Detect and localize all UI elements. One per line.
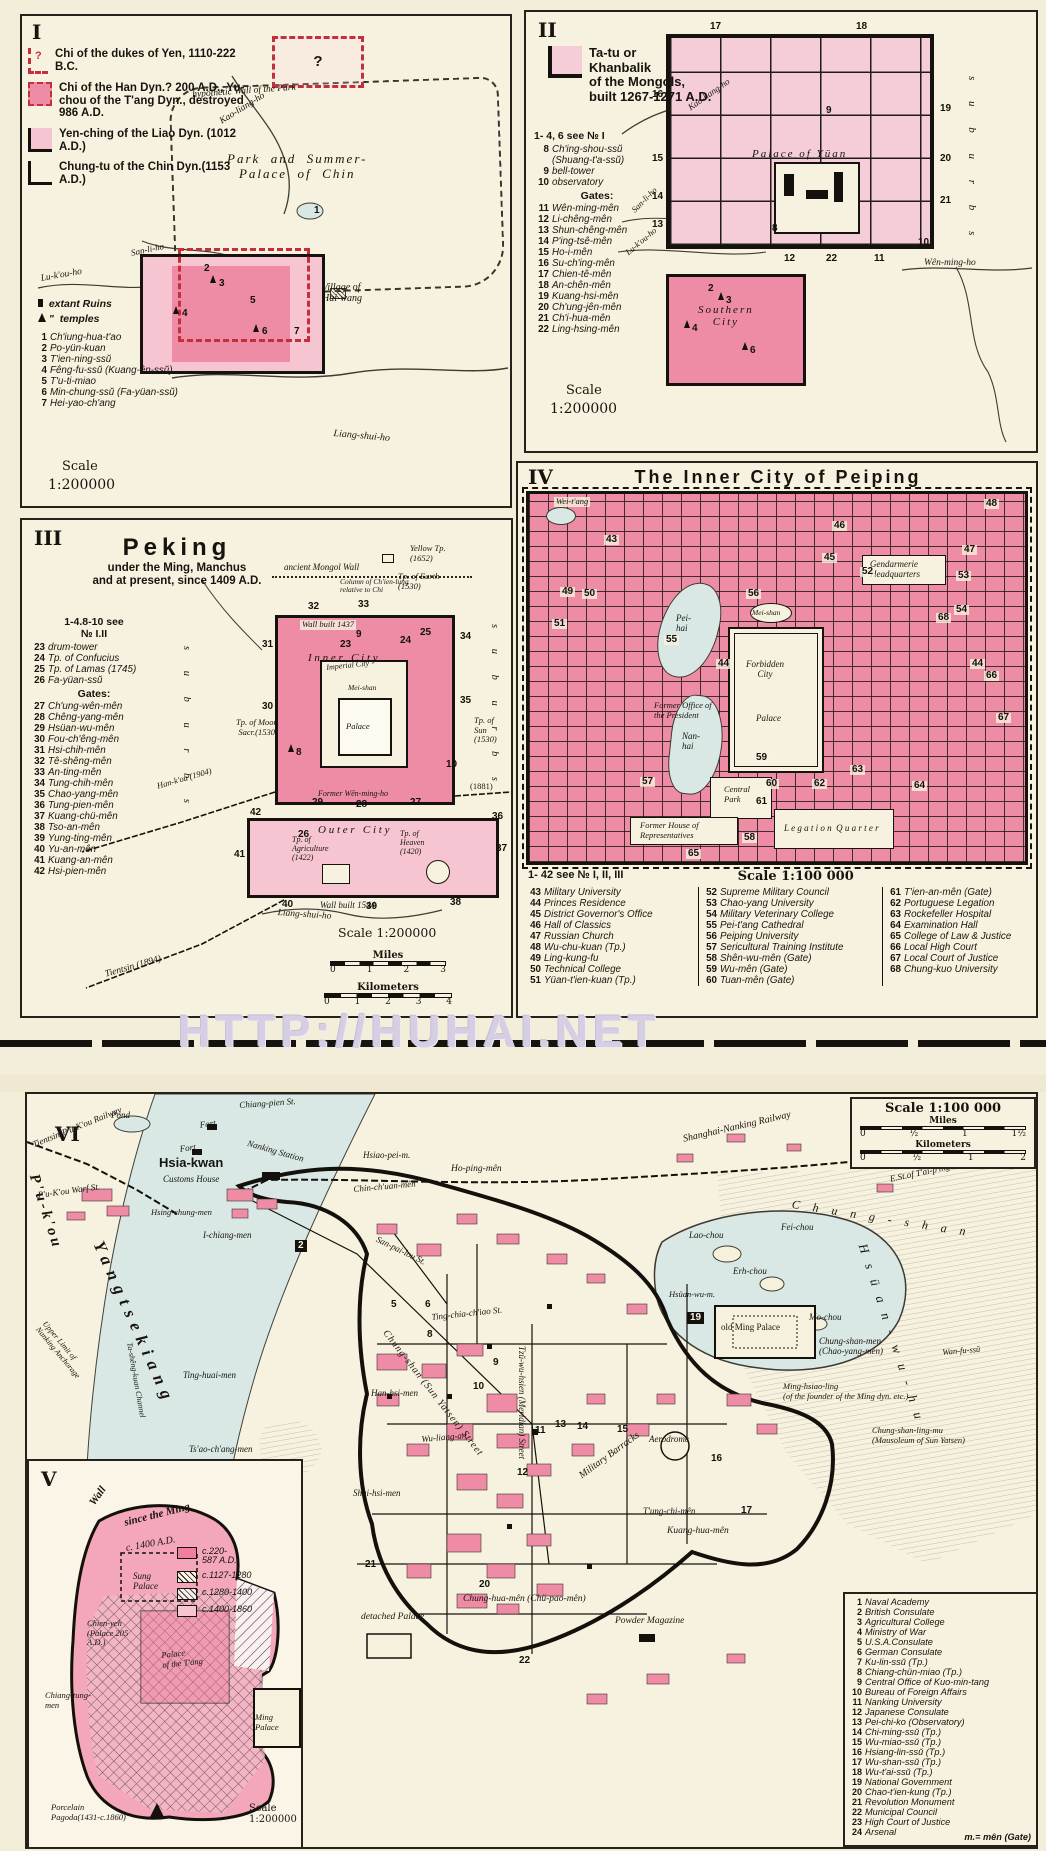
list-item: 60Tuan-mên (Gate) [702, 975, 878, 986]
han-chi-shape [178, 248, 310, 342]
map-marker: 2 [204, 264, 210, 274]
gates-heading: Gates: [534, 190, 660, 202]
map-marker: 30 [262, 702, 273, 712]
map-marker: 10 [473, 1382, 484, 1392]
map-marker: 35 [460, 696, 471, 706]
label-outer-city: O u t e r C i t y [318, 824, 390, 836]
label-temple-moon: Tp. of Moon Sacr.(1530) [236, 718, 278, 737]
map-marker: 23 [340, 640, 351, 650]
panel-2-title: Ta-tu orKhanbalikof the Mongols,built 12… [589, 46, 711, 104]
watermark-text: HTTP://HUHAI.NET [178, 1006, 660, 1058]
label-mongol-wall: ancient Mongol Wall [284, 562, 359, 572]
panel-1: I ?Chi of the dukes of Yen, 1110-222 B.C… [20, 14, 512, 508]
list-item: 13Shun-chêng-mên [534, 225, 660, 236]
label-ming-palace: Ming Palace [255, 1713, 279, 1732]
era-220-swatch-icon [177, 1547, 197, 1559]
miles-scalebar: Miles 0½11½ [860, 1116, 1026, 1140]
map-marker: 13 [555, 1420, 566, 1430]
label-meishan: Mei-shan [752, 609, 780, 617]
map-marker: 61 [754, 797, 769, 807]
map-marker: 67 [996, 713, 1011, 723]
list-item: 23drum-tower [30, 642, 158, 653]
map-marker: 4 [182, 309, 188, 319]
label-mei-shan: Mei-shan [348, 684, 376, 692]
era-1400-swatch-icon [177, 1605, 197, 1617]
map-marker: 63 [850, 765, 865, 775]
map-marker: 52 [860, 567, 875, 577]
list-item: 57Sericultural Training Institute [702, 942, 878, 953]
map-marker: 7 [294, 327, 300, 337]
label-fei-chou: Fei-chou [781, 1222, 813, 1232]
map-marker: 5 [250, 296, 256, 306]
panel-3-title: Peking [62, 534, 292, 562]
label-gendarmerie: Gendarmerie Headquarters [870, 559, 920, 579]
list-item: 58Shên-wu-mên (Gate) [702, 953, 878, 964]
map-marker: 40 [282, 900, 293, 910]
label-chung-shan-men: Chung-shan-men (Chao-yang-men) [819, 1336, 883, 1356]
list-item: 14P'ing-tsê-mên [534, 236, 660, 247]
map-marker: 21 [940, 196, 951, 206]
map-marker: 11 [874, 254, 885, 264]
list-item: 23High Court of Justice [849, 1817, 1032, 1827]
map-marker: 62 [812, 779, 827, 789]
map-marker: 66 [984, 671, 999, 681]
temple-icon [742, 342, 748, 350]
map-marker: 32 [308, 602, 319, 612]
legend-row-yen: ?Chi of the dukes of Yen, 1110-222 B.C. [28, 48, 248, 74]
bottom-sheet: VI Scale 1:100 000 Miles 0½11½ Kilometer… [0, 1092, 1046, 1851]
panel-3: III Peking under the Ming, Manchusand at… [20, 518, 513, 1018]
map-marker: 44 [970, 659, 985, 669]
legend-col-1: 43Military University44Princes Residence… [526, 887, 694, 986]
label-chien-yeh: Chien-yeh (Palace 205 A.D.) [87, 1619, 128, 1648]
list-item: 6Min-chung-ssŭ (Fa-yüan-ssŭ) [32, 387, 200, 398]
list-item: 19National Government [849, 1777, 1032, 1787]
km-ticks: 0½12 [860, 1154, 1026, 1164]
map-marker: 21 [365, 1560, 376, 1570]
label-sung-palace: Sung Palace [133, 1571, 158, 1591]
label-tung-chi-men: T'ung-chi-mên [643, 1506, 695, 1516]
map-marker: 4 [692, 324, 698, 334]
list-item: 45District Governor's Office [526, 909, 694, 920]
map-marker: 17 [741, 1506, 752, 1516]
list-item: 59Wu-mên (Gate) [702, 964, 878, 975]
chin-swatch-icon [28, 161, 52, 185]
map-marker: 50 [582, 589, 597, 599]
legend-row-chin: Chung-tu of the Chin Dyn.(1153 A.D.) [28, 161, 248, 186]
map-marker: 14 [577, 1422, 588, 1432]
list-item: 64Examination Hall [886, 920, 1032, 931]
legend-row-liao: Yen-ching of the Liao Dyn. (1012 A.D.) [28, 128, 248, 153]
map-marker: 6 [262, 327, 268, 337]
km-caption: Kilometers [324, 982, 452, 993]
map-marker: 6 [750, 346, 756, 356]
list-item: 44Princes Residence [526, 898, 694, 909]
label-wall-1437: Wall built 1437 [300, 620, 356, 630]
tick-label: 2 [1020, 1154, 1026, 1164]
label-chiang-tung-men: Chiang-tung- men [45, 1691, 91, 1710]
list-item: 20Chao-t'ien-kung (Tp.) [849, 1787, 1032, 1797]
ruins-label: extant Ruins [49, 298, 112, 310]
list-item: 51Yüan-t'ien-kuan (Tp.) [526, 975, 694, 986]
southern-city-shape [666, 274, 806, 386]
label-porcelain-pagoda: Porcelain Pagoda(1431-c.1860) [51, 1803, 126, 1822]
panel-1-legend: ?Chi of the dukes of Yen, 1110-222 B.C. … [28, 48, 248, 194]
ruins-key: extant Ruins [38, 298, 112, 310]
list-item: 8Chiang-chün-miao (Tp.) [849, 1667, 1032, 1677]
list-item: 1Ch'iung-hua-t'ao [32, 332, 200, 343]
list-item: 67Local Court of Justice [886, 953, 1032, 964]
map-marker: 6 [425, 1300, 431, 1310]
list-item: 14Chi-ming-ssŭ (Tp.) [849, 1727, 1032, 1737]
list-item: 36Tung-pien-mên [30, 800, 158, 811]
list-item: 11Nanking University [849, 1697, 1032, 1707]
map-marker: 44 [716, 659, 731, 669]
panel-1-roman: I [32, 20, 41, 44]
label-mo-chou: Mo-chou [809, 1312, 842, 1322]
list-item: 53Chao-yang University [702, 898, 878, 909]
panel-2-legend: Ta-tu orKhanbalikof the Mongols,built 12… [548, 46, 711, 104]
panel-2-key-list: 1- 4, 6 see № I 8Ch'ing-shou-ssŭ (Shuang… [534, 130, 660, 335]
legend-label: c.1280-1400 [202, 1588, 252, 1597]
temple-icon [253, 324, 259, 332]
list-item: 13Pei-chi-ko (Observatory) [849, 1717, 1032, 1727]
scale-title: Scale 1:100 000 [860, 1101, 1026, 1116]
list-item: 17Wu-shan-ssŭ (Tp.) [849, 1757, 1032, 1767]
hypothetic-chi-square: ? [272, 36, 364, 88]
scale-value: 1:200000 [550, 402, 617, 418]
panel-6-roman: VI [55, 1122, 80, 1146]
map-marker: 53 [956, 571, 971, 581]
label-tsao-chang-men: Ts'ao-ch'ang-men [189, 1444, 253, 1454]
panel-2-items: 8Ch'ing-shou-ssŭ (Shuang-t'a-ssŭ)9bell-t… [534, 144, 660, 188]
forbidden-city-shape [728, 627, 824, 773]
temple-icon [718, 292, 724, 300]
map-marker: 8 [772, 224, 778, 234]
label-president-office: Former Office of the President [654, 701, 712, 720]
list-item: 16Hsiang-lin-ssŭ (Tp.) [849, 1747, 1032, 1757]
list-item: 5U.S.A.Consulate [849, 1637, 1032, 1647]
legend-col-3: 61T'ien-an-mên (Gate)62Portuguese Legati… [882, 887, 1032, 986]
list-item: 7Hei-yao-ch'ang [32, 398, 200, 409]
list-item: 40Yu-an-mên [30, 844, 158, 855]
panel-5: V Wall since the Ming c. 1400 A.D. c.220… [27, 1459, 303, 1849]
tick-label: 2 [404, 966, 410, 976]
weitang-pond-shape [546, 507, 576, 525]
tick-label: ½ [910, 1130, 919, 1140]
see-note: 1-4.8-10 see № I.II [30, 616, 158, 640]
panel-5-roman: V [41, 1467, 57, 1491]
map-marker: 12 [517, 1468, 528, 1478]
legend-label: c.1400-1860 [202, 1605, 252, 1614]
label-kuang-hua-men: Kuang-hua-mên [667, 1526, 729, 1537]
list-item: 26Fa-yüan-ssŭ [30, 675, 158, 686]
top-sheet: I ?Chi of the dukes of Yen, 1110-222 B.C… [0, 0, 1046, 1075]
temple-icon [173, 306, 179, 314]
map-marker: 34 [460, 632, 471, 642]
label-suburbs-east: s u b u r b s [488, 624, 500, 790]
era-1280-swatch-icon [177, 1588, 197, 1600]
list-item: 55Pei-t'ang Cathedral [702, 920, 878, 931]
label-palace: Palace [346, 722, 370, 732]
label-han-hsi-men: Han-hsi-men [371, 1388, 418, 1398]
list-item: 68Chung-kuo University [886, 964, 1032, 975]
label-ting-huai-men: Ting-huai-men [183, 1370, 236, 1380]
label-hsing-chung-men: Hsing-chung-men [151, 1208, 212, 1218]
label-park: Park and Summer- Palace of Chin [227, 152, 367, 181]
list-item: 54Military Veterinary College [702, 909, 878, 920]
map-marker: 36 [492, 812, 503, 822]
map-marker: 10 [918, 238, 929, 248]
scale-title: Scale [62, 460, 98, 475]
list-item: 50Technical College [526, 964, 694, 975]
map-marker: 47 [962, 545, 977, 555]
label-southern-city: Southern City [698, 304, 754, 329]
map-marker: 68 [936, 613, 951, 623]
panel-3-gates: 27Ch'ung-wên-mên28Chêng-yang-mên29Hsüan-… [30, 701, 158, 877]
map-marker: 24 [400, 636, 411, 646]
temple-agriculture-shape [322, 864, 350, 884]
list-item: 24Tp. of Confucius [30, 653, 158, 664]
list-item: 15Wu-miao-ssŭ (Tp.) [849, 1737, 1032, 1747]
map-marker: 27 [410, 798, 421, 808]
scale-title: Scale 1:200000 [338, 926, 436, 940]
map-marker: 19 [940, 104, 951, 114]
list-item: 35Chao-yang-mên [30, 789, 158, 800]
map-marker: 51 [552, 619, 567, 629]
map-marker: 11 [535, 1426, 546, 1436]
list-item: 4Ministry of War [849, 1627, 1032, 1637]
map-marker: 8 [296, 748, 302, 758]
list-item: 49Ling-kung-fu [526, 953, 694, 964]
list-item: 28Chêng-yang-mên [30, 712, 158, 723]
label-ming-hsiao-ling: Ming-hsiao-ling (of the founder of the M… [783, 1382, 908, 1401]
map-marker: 56 [746, 589, 761, 599]
label-yellow-temple: Yellow Tp. (1652) [410, 544, 446, 563]
list-item: 9Central Office of Kuo-min-tang [849, 1677, 1032, 1687]
map-marker: 2 [295, 1240, 307, 1252]
map-marker: 37 [496, 844, 507, 854]
scale-title: Scale 1:200000 [249, 1803, 297, 1825]
map-marker: 25 [420, 628, 431, 638]
panel-4-title: The Inner City of Peiping [578, 467, 978, 488]
list-item: 62Portuguese Legation [886, 898, 1032, 909]
yen-swatch-icon: ? [28, 48, 48, 74]
list-footnote: m.= mên (Gate) [964, 1832, 1031, 1842]
map-marker: 58 [742, 833, 757, 843]
list-item: 37Kuang-chü-mên [30, 811, 158, 822]
map-marker: 54 [954, 605, 969, 615]
legend-label: Yen-ching of the Liao Dyn. (1012 A.D.) [59, 128, 248, 153]
panel-2-gates: 11Wên-ming-mên12Li-chêng-mên13Shun-chêng… [534, 203, 660, 335]
label-forbidden-palace: Palace [756, 713, 781, 723]
question-marker: ? [313, 53, 322, 70]
list-item: 61T'ien-an-mên (Gate) [886, 887, 1032, 898]
question-mark: ? [35, 50, 42, 62]
legend-label: c.1127-1280 [202, 1571, 251, 1580]
panel-4-legend-columns: 43Military University44Princes Residence… [526, 887, 1032, 986]
label-old-ming-palace: old Ming Palace [721, 1322, 780, 1332]
temples-key: " temples [38, 313, 112, 325]
map-marker: 9 [356, 630, 362, 640]
list-item: 15Ho-i-mên [534, 247, 660, 258]
list-item: 12Japanese Consulate [849, 1707, 1032, 1717]
label-former-wenming: Former Wên-ming-ho [318, 790, 388, 799]
list-item: 42Hsi-pien-mên [30, 866, 158, 877]
label-peihai: Pei- hai [676, 613, 691, 633]
label-suburbs-west: s u b u r b s [180, 646, 192, 812]
map-marker: 31 [262, 640, 273, 650]
miles-caption: Miles [860, 1116, 1026, 1126]
map-marker: 22 [826, 254, 837, 264]
list-item: 56Peiping University [702, 931, 878, 942]
panel-3-key-list: 1-4.8-10 see № I.II 23drum-tower24Tp. of… [30, 616, 158, 877]
label-hsiakwan: Hsia-kwan [159, 1156, 223, 1171]
map-marker: 3 [219, 279, 225, 289]
tick-label: 0 [860, 1154, 866, 1164]
map-marker: 3 [726, 296, 732, 306]
label-erh-chou: Erh-chou [733, 1266, 767, 1276]
temples-label: temples [60, 313, 100, 325]
list-item: 1Naval Academy [849, 1597, 1032, 1607]
map-marker: 59 [754, 753, 769, 763]
list-item: 3Agricultural College [849, 1617, 1032, 1627]
label-central-park: Central Park [724, 785, 750, 804]
label-suburbs: s u b u r b s [966, 76, 978, 244]
gates-heading: Gates: [30, 688, 158, 700]
miles-ticks: 0½11½ [860, 1130, 1026, 1140]
label-i-chiang-men: I-chiang-men [203, 1230, 251, 1240]
list-item: 3T'ien-ning-ssŭ [32, 354, 200, 365]
label-aerodrome: Aerodrome [649, 1434, 689, 1444]
list-item: 52Supreme Military Council [702, 887, 878, 898]
label-legation-quarter: L e g a t i o n Q u a r t e r [784, 823, 879, 833]
liao-swatch-icon [28, 128, 52, 152]
label-nanhai: Nan- hai [682, 731, 700, 751]
list-item: 21Revolution Monument [849, 1797, 1032, 1807]
panel-4: IV The Inner City of Peiping Wei-t'ang P… [516, 461, 1038, 1018]
list-item: 46Hall of Classics [526, 920, 694, 931]
map-marker: 55 [664, 635, 679, 645]
palace-building [806, 190, 828, 199]
map-marker: 42 [250, 808, 261, 818]
legend-row: c.1280-1400 [177, 1588, 299, 1600]
map-marker: 20 [940, 154, 951, 164]
panel-4-roman: IV [528, 465, 553, 489]
map-marker: 48 [984, 499, 999, 509]
panel-3-items: 23drum-tower24Tp. of Confucius25Tp. of L… [30, 642, 158, 686]
map-marker: 20 [479, 1580, 490, 1590]
list-item: 29Hsüan-wu-mên [30, 723, 158, 734]
label-meridian-street: Tzŭ-wu-hsien (Meridian) Street [517, 1346, 527, 1459]
map-marker: 9 [493, 1358, 499, 1368]
list-item: 9bell-tower [534, 166, 660, 177]
label-house-of-representatives: Former House of Representatives [640, 821, 699, 840]
map-marker: 57 [640, 777, 655, 787]
legend-row: c.220- 587 A.D. [177, 1547, 299, 1566]
legend-label: Chi of the Han Dyn.? 200 A.D., Yu-chou o… [59, 82, 248, 120]
map-marker: 18 [856, 22, 867, 32]
list-item: 17Chien-tê-mên [534, 269, 660, 280]
label-temple-heaven: Tp. of Heaven (1420) [400, 830, 424, 857]
label-ho-ping-men: Ho-ping-mên [451, 1164, 502, 1175]
map-marker: 28 [356, 800, 367, 810]
list-item: 63Rockefeller Hospital [886, 909, 1032, 920]
label-weitang: Wei-t'ang [554, 497, 590, 507]
label-customs-house: Customs House [163, 1174, 219, 1184]
list-item: 5T'u-ti-miao [32, 376, 200, 387]
map-marker: 16 [711, 1454, 722, 1464]
tick-label: ½ [912, 1154, 921, 1164]
label-village: Village of Hai-wang [322, 282, 362, 304]
map-marker: 2 [708, 284, 714, 294]
legend-label: Chi of the dukes of Yen, 1110-222 B.C. [55, 48, 248, 74]
panel-2-roman: II [538, 18, 557, 42]
yuan-palace-shape [774, 162, 860, 234]
tick-label: 3 [440, 966, 446, 976]
list-item: 31Hsi-chih-mên [30, 745, 158, 756]
legend-label: c.220- 587 A.D. [202, 1547, 237, 1566]
map-marker: 5 [391, 1300, 397, 1310]
map-marker: 45 [822, 553, 837, 563]
panel-4-legend-header: 1- 42 see № I, II, III Scale 1:100 000 [528, 869, 1028, 884]
map-marker: 39 [366, 902, 377, 912]
map-marker: 17 [710, 22, 721, 32]
panel-6: VI Scale 1:100 000 Miles 0½11½ Kilometer… [25, 1092, 1038, 1849]
palace-building [834, 172, 843, 202]
label-wen-ming-ho: Wên-ming-ho [924, 258, 976, 269]
scale-value: 1:200000 [48, 478, 115, 494]
miles-scalebar: Miles 0123 [330, 950, 446, 976]
tatu-swatch-icon [548, 46, 582, 78]
map-marker: 60 [764, 779, 779, 789]
map-marker: 64 [912, 781, 927, 791]
list-item: 30Fou-ch'êng-mên [30, 734, 158, 745]
ruin-icon [38, 299, 43, 307]
list-item: 16Su-ch'ing-mên [534, 258, 660, 269]
temple-icon [288, 744, 294, 752]
map-marker: 12 [784, 254, 795, 264]
list-item: 10observatory [534, 177, 660, 188]
list-item: 21Ch'i-hua-mên [534, 313, 660, 324]
label-forbidden-city: Forbidden City [746, 659, 784, 679]
panel-2: II Ta-tu orKhanbalikof the Mongols,built… [524, 10, 1038, 453]
label-chung-hua-men: Chung-hua-mên (Chü-pao-mên) [463, 1594, 586, 1605]
map-marker: 43 [604, 535, 619, 545]
miles-caption: Miles [330, 950, 446, 961]
legend-note: 1- 42 see № I, II, III [528, 869, 623, 884]
ditto-mark: " [49, 313, 54, 325]
map-marker: 46 [832, 521, 847, 531]
km-scalebar: Kilometers 01234 [324, 982, 452, 1008]
label-temple-agriculture: Tp. of Agriculture (1422) [292, 836, 329, 863]
panel-1-site-list: 1Ch'iung-hua-t'ao2Po-yün-kuan3T'ien-ning… [32, 332, 200, 409]
panel-4-scale: Scale 1:100 000 [738, 869, 854, 884]
list-item: 19Kuang-hsi-mên [534, 291, 660, 302]
han-swatch-icon [28, 82, 52, 106]
list-item: 48Wu-chu-kuan (Tp.) [526, 942, 694, 953]
km-scalebar: Kilometers 0½12 [860, 1140, 1026, 1164]
list-item: 32Tê-shêng-mên [30, 756, 158, 767]
map-marker: 10 [446, 760, 457, 770]
list-item: 2British Consulate [849, 1607, 1032, 1617]
tick-label: 1½ [1012, 1130, 1026, 1140]
list-item: 2Po-yün-kuan [32, 343, 200, 354]
panel-3-subtitle: under the Ming, Manchusand at present, s… [62, 562, 292, 588]
watermark-band: HTTP://HUHAI.NET [0, 1008, 1046, 1092]
list-item: 65College of Law & Justice [886, 931, 1032, 942]
tick-label: 1 [968, 1154, 974, 1164]
